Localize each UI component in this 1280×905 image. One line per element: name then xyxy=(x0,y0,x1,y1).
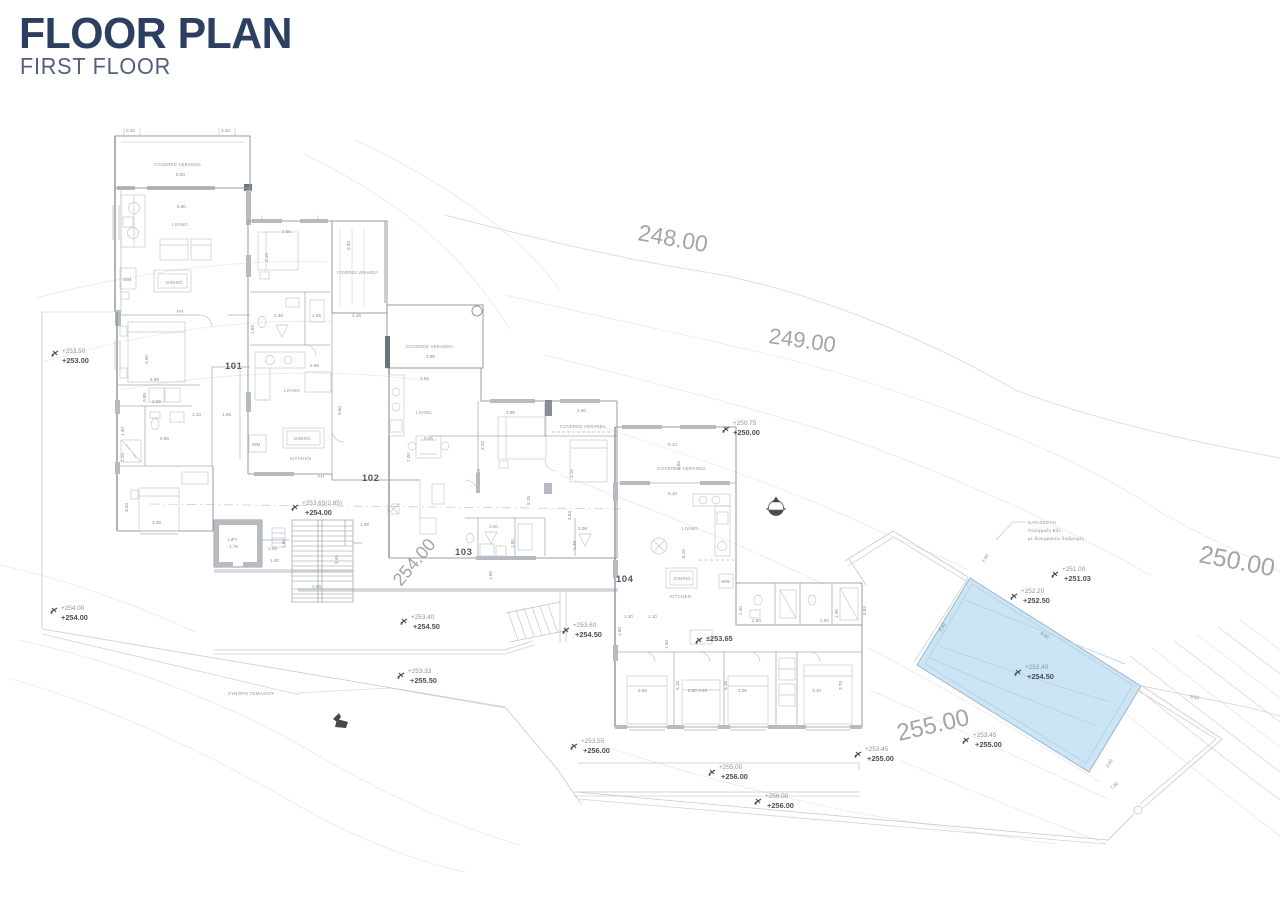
svg-text:0.88: 0.88 xyxy=(160,436,169,441)
svg-text:+256.00: +256.00 xyxy=(583,746,610,755)
svg-text:5.18: 5.18 xyxy=(723,681,728,690)
svg-text:104: 104 xyxy=(616,574,634,585)
svg-text:COVERED VERANDA: COVERED VERANDA xyxy=(560,424,606,429)
svg-text:2.88: 2.88 xyxy=(312,584,321,589)
svg-text:1.85: 1.85 xyxy=(488,571,493,580)
svg-text:3.00: 3.00 xyxy=(124,503,129,512)
svg-text:1.80: 1.80 xyxy=(617,627,622,636)
svg-text:+251.03: +251.03 xyxy=(1064,574,1091,583)
svg-text:+255.50: +255.50 xyxy=(410,676,437,685)
svg-text:1.88: 1.88 xyxy=(250,325,255,334)
svg-text:3.70: 3.70 xyxy=(838,681,843,690)
svg-text:0.60 0.60: 0.60 0.60 xyxy=(688,688,708,693)
svg-text:+253.40: +253.40 xyxy=(411,614,435,621)
svg-text:LIVING: LIVING xyxy=(416,410,432,415)
svg-text:LIVING: LIVING xyxy=(682,526,698,531)
svg-text:ΚΑΤΑΣΚΕΥΗ: ΚΑΤΑΣΚΕΥΗ xyxy=(1028,520,1056,525)
svg-text:5.25: 5.25 xyxy=(526,496,531,505)
svg-text:KITCHEN: KITCHEN xyxy=(290,456,311,461)
svg-text:3.00: 3.00 xyxy=(144,355,149,364)
svg-text:2.16: 2.16 xyxy=(352,313,361,318)
svg-text:WM: WM xyxy=(252,442,260,447)
svg-text:+254.00: +254.00 xyxy=(61,605,85,612)
svg-text:Περίφραξη Βδ1: Περίφραξη Βδ1 xyxy=(1028,528,1062,533)
svg-text:6.20: 6.20 xyxy=(681,549,686,558)
svg-text:3.06: 3.06 xyxy=(738,688,747,693)
svg-text:2.99: 2.99 xyxy=(150,377,159,382)
svg-text:5.10: 5.10 xyxy=(668,491,677,496)
svg-text:1.40: 1.40 xyxy=(120,427,125,436)
svg-text:5.18: 5.18 xyxy=(675,681,680,690)
svg-text:0.88: 0.88 xyxy=(142,393,147,402)
svg-text:+250.75: +250.75 xyxy=(733,420,757,427)
svg-text:με διακμφανείς διαδρομές: με διακμφανείς διαδρομές xyxy=(1028,535,1085,541)
svg-text:3.55: 3.55 xyxy=(420,376,429,381)
svg-text:+253.33: +253.33 xyxy=(408,668,432,675)
svg-text:5.90: 5.90 xyxy=(177,204,186,209)
svg-text:FH: FH xyxy=(177,309,183,314)
svg-text:LIVING: LIVING xyxy=(172,222,188,227)
svg-text:+256.00: +256.00 xyxy=(721,772,748,781)
svg-text:5.10: 5.10 xyxy=(668,442,677,447)
svg-text:1.75: 1.75 xyxy=(229,544,238,549)
svg-text:3.08: 3.08 xyxy=(578,526,587,531)
svg-text:WW: WW xyxy=(721,579,730,584)
svg-text:+255.00: +255.00 xyxy=(975,740,1002,749)
svg-text:3.45: 3.45 xyxy=(334,555,339,564)
svg-text:1.50: 1.50 xyxy=(664,640,669,649)
svg-text:5.00: 5.00 xyxy=(176,172,185,177)
svg-text:LIFT: LIFT xyxy=(228,537,238,542)
svg-text:+250.00: +250.00 xyxy=(733,428,760,437)
svg-text:+254.50: +254.50 xyxy=(575,630,602,639)
svg-text:3.00: 3.00 xyxy=(489,524,498,529)
svg-text:+253.00: +253.00 xyxy=(62,356,89,365)
svg-text:2.94: 2.94 xyxy=(820,618,829,623)
svg-text:LIVING: LIVING xyxy=(284,388,300,393)
svg-text:+253.55: +253.55 xyxy=(581,738,605,745)
svg-text:5.60: 5.60 xyxy=(337,406,342,415)
svg-text:+253.40: +253.40 xyxy=(1025,664,1049,671)
svg-text:COVERED VERANDA: COVERED VERANDA xyxy=(657,466,706,471)
svg-text:1.20: 1.20 xyxy=(120,453,125,462)
svg-text:+252.20: +252.20 xyxy=(1021,588,1045,595)
svg-text:1.40: 1.40 xyxy=(270,558,279,563)
svg-text:0.40: 0.40 xyxy=(346,241,351,250)
svg-text:1.85: 1.85 xyxy=(222,412,231,417)
svg-text:3.10: 3.10 xyxy=(812,688,821,693)
svg-text:1.10: 1.10 xyxy=(192,412,201,417)
svg-text:1.90: 1.90 xyxy=(834,609,839,618)
svg-text:1.00: 1.00 xyxy=(738,606,743,615)
svg-text:+254.50: +254.50 xyxy=(413,622,440,631)
svg-text:3.49: 3.49 xyxy=(152,520,161,525)
svg-text:DINING: DINING xyxy=(166,280,183,285)
svg-text:+252.50: +252.50 xyxy=(1023,596,1050,605)
svg-text:ΣΥΝΟΡΟ ΤΕΜΑΧΙΟΥ: ΣΥΝΟΡΟ ΤΕΜΑΧΙΟΥ xyxy=(228,691,274,696)
svg-text:3.95: 3.95 xyxy=(426,354,435,359)
svg-text:3.65: 3.65 xyxy=(638,688,647,693)
svg-text:FIRST FLOOR: FIRST FLOOR xyxy=(20,53,171,79)
svg-text:3.10: 3.10 xyxy=(264,253,269,262)
svg-text:2.85: 2.85 xyxy=(310,363,319,368)
svg-text:+254.00: +254.00 xyxy=(61,613,88,622)
svg-text:COVERED VERANDA: COVERED VERANDA xyxy=(406,344,453,349)
svg-text:DINING: DINING xyxy=(674,576,691,581)
svg-text:COVERED VERANDA: COVERED VERANDA xyxy=(337,270,378,275)
svg-text:7.00: 7.00 xyxy=(406,453,411,462)
svg-text:WM: WM xyxy=(123,277,131,282)
svg-text:+256.00: +256.00 xyxy=(767,801,794,810)
svg-text:+254.00: +254.00 xyxy=(305,508,332,517)
svg-text:+253.60: +253.60 xyxy=(573,622,597,629)
svg-text:1.09: 1.09 xyxy=(312,313,321,318)
svg-text:1.10: 1.10 xyxy=(648,614,657,619)
svg-text:1.20: 1.20 xyxy=(624,614,633,619)
svg-text:+253.45: +253.45 xyxy=(865,746,889,753)
svg-text:+255.00: +255.00 xyxy=(867,754,894,763)
svg-text:FLOOR PLAN: FLOOR PLAN xyxy=(19,9,292,58)
svg-text:1.48: 1.48 xyxy=(572,541,577,550)
svg-text:1.48: 1.48 xyxy=(268,546,277,551)
svg-text:3.63: 3.63 xyxy=(567,511,572,520)
svg-text:3.85: 3.85 xyxy=(506,410,515,415)
svg-text:2.90: 2.90 xyxy=(577,408,586,413)
svg-text:+253.50: +253.50 xyxy=(62,348,86,355)
svg-text:FH: FH xyxy=(318,474,324,479)
svg-text:0.40: 0.40 xyxy=(221,128,230,133)
svg-text:3.20: 3.20 xyxy=(480,441,485,450)
svg-text:103: 103 xyxy=(455,547,472,558)
svg-text:+255.00: +255.00 xyxy=(719,764,743,771)
svg-text:+254.50: +254.50 xyxy=(1027,672,1054,681)
svg-text:1.80: 1.80 xyxy=(510,539,515,548)
svg-text:+253.45: +253.45 xyxy=(973,732,997,739)
svg-text:2.80: 2.80 xyxy=(752,618,761,623)
svg-text:2.40: 2.40 xyxy=(274,313,283,318)
svg-text:2.00: 2.00 xyxy=(152,399,161,404)
svg-text:+256.00: +256.00 xyxy=(765,793,789,800)
svg-text:+251.00: +251.00 xyxy=(1062,566,1086,573)
svg-text:3.55: 3.55 xyxy=(282,229,291,234)
svg-text:±253.65: ±253.65 xyxy=(706,634,733,643)
svg-text:COVERED VERANDA: COVERED VERANDA xyxy=(154,162,201,167)
svg-text:1.28: 1.28 xyxy=(360,522,369,527)
svg-text:0.83: 0.83 xyxy=(862,606,867,615)
svg-text:KITCHEN: KITCHEN xyxy=(670,594,691,599)
svg-text:DINING: DINING xyxy=(294,436,311,441)
svg-text:0.40: 0.40 xyxy=(126,128,135,133)
svg-text:102: 102 xyxy=(362,473,379,484)
svg-text:+253.65(2.85): +253.65(2.85) xyxy=(302,500,342,507)
